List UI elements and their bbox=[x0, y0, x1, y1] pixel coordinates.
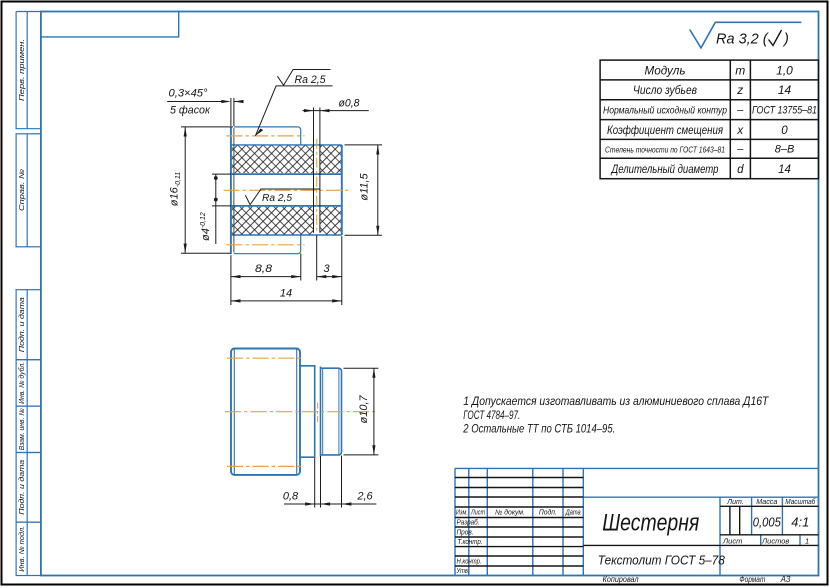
svg-text:14: 14 bbox=[778, 83, 792, 97]
svg-text:Ra 2,5: Ra 2,5 bbox=[295, 74, 327, 86]
svg-text:Взам. инв. №: Взам. инв. № bbox=[19, 408, 26, 450]
svg-text:Степень точности по ГОСТ 1643–: Степень точности по ГОСТ 1643–81 bbox=[605, 145, 725, 155]
svg-text:Масштаб: Масштаб bbox=[785, 498, 816, 506]
svg-text:Разраб.: Разраб. bbox=[457, 518, 480, 527]
svg-text:Масса: Масса bbox=[756, 499, 777, 506]
svg-text:2,6: 2,6 bbox=[356, 491, 373, 503]
svg-text:5 фасок: 5 фасок bbox=[170, 105, 211, 117]
svg-text:8,8: 8,8 bbox=[255, 263, 273, 275]
svg-text:Листов: Листов bbox=[761, 536, 789, 545]
svg-text:–: – bbox=[736, 144, 744, 156]
svg-text:Инв. № подл.: Инв. № подл. bbox=[18, 526, 26, 572]
svg-text:Лист: Лист bbox=[722, 536, 742, 545]
svg-text:Коэффициент смещения: Коэффициент смещения bbox=[607, 125, 723, 137]
svg-text:Ra 2,5: Ra 2,5 bbox=[262, 192, 292, 204]
svg-text:Перв. примен.: Перв. примен. bbox=[19, 39, 26, 101]
svg-text:14: 14 bbox=[778, 164, 791, 176]
svg-text:Лит.: Лит. bbox=[726, 499, 743, 506]
svg-text:2 Остальные ТТ по СТБ 1014–95.: 2 Остальные ТТ по СТБ 1014–95. bbox=[462, 424, 615, 436]
svg-text:0: 0 bbox=[781, 125, 788, 137]
svg-text:А3: А3 bbox=[780, 575, 791, 584]
svg-text:Н.контр.: Н.контр. bbox=[457, 556, 482, 565]
svg-text:1: 1 bbox=[805, 536, 809, 545]
svg-text:ГОСТ 13755–81: ГОСТ 13755–81 bbox=[752, 105, 817, 117]
svg-text:4:1: 4:1 bbox=[791, 515, 809, 530]
svg-text:): ) bbox=[782, 32, 789, 48]
svg-text:0,005: 0,005 bbox=[753, 515, 782, 530]
svg-text:Т.контр.: Т.контр. bbox=[458, 537, 483, 546]
svg-text:Подп. и дата: Подп. и дата bbox=[18, 297, 26, 352]
svg-text:Копировал: Копировал bbox=[603, 575, 639, 584]
svg-text:Подп.: Подп. bbox=[539, 509, 557, 517]
svg-text:Шестерня: Шестерня bbox=[602, 510, 699, 537]
svg-text:ø10,7: ø10,7 bbox=[358, 394, 370, 423]
svg-text:ø0,8: ø0,8 bbox=[339, 98, 361, 110]
svg-text:ø11,5: ø11,5 bbox=[359, 172, 371, 200]
svg-text:Инв. № дубл.: Инв. № дубл. bbox=[18, 362, 26, 404]
svg-text:Справ. №: Справ. № bbox=[19, 168, 26, 211]
svg-text:3: 3 bbox=[323, 263, 330, 275]
svg-text:Формат: Формат bbox=[739, 575, 765, 584]
svg-text:Число зубьев: Число зубьев bbox=[633, 83, 697, 97]
svg-text:m: m bbox=[735, 63, 745, 77]
svg-text:Дата: Дата bbox=[565, 510, 581, 517]
svg-text:Пров.: Пров. bbox=[457, 527, 474, 536]
svg-text:Делительный диаметр: Делительный диаметр bbox=[610, 164, 719, 176]
svg-text:Утв.: Утв. bbox=[456, 566, 470, 575]
svg-text:1,0: 1,0 bbox=[776, 63, 793, 77]
svg-text:Лист: Лист bbox=[470, 510, 485, 517]
svg-text:8–В: 8–В bbox=[775, 144, 795, 156]
svg-text:14: 14 bbox=[280, 287, 292, 299]
svg-text:z: z bbox=[736, 83, 743, 97]
svg-text:Нормальный исходный контур: Нормальный исходный контур bbox=[603, 106, 727, 117]
svg-text:ГОСТ 4784–97.: ГОСТ 4784–97. bbox=[463, 410, 520, 422]
svg-text:Подп. и дата: Подп. и дата bbox=[18, 460, 26, 515]
svg-text:Модуль: Модуль bbox=[645, 63, 686, 77]
svg-text:Текстолит ГОСТ 5–78: Текстолит ГОСТ 5–78 bbox=[598, 554, 725, 568]
svg-text:–: – bbox=[736, 105, 744, 117]
svg-text:d: d bbox=[737, 164, 744, 176]
svg-text:0,3×45°: 0,3×45° bbox=[169, 88, 209, 100]
svg-text:0,8: 0,8 bbox=[283, 491, 299, 503]
svg-text:Изм.: Изм. bbox=[456, 510, 468, 517]
svg-text:№ докум.: № докум. bbox=[495, 509, 525, 517]
svg-text:Ra 3,2 (: Ra 3,2 ( bbox=[716, 32, 770, 48]
svg-text:1 Допускается изготавливать из: 1 Допускается изготавливать из алюминиев… bbox=[463, 396, 769, 408]
